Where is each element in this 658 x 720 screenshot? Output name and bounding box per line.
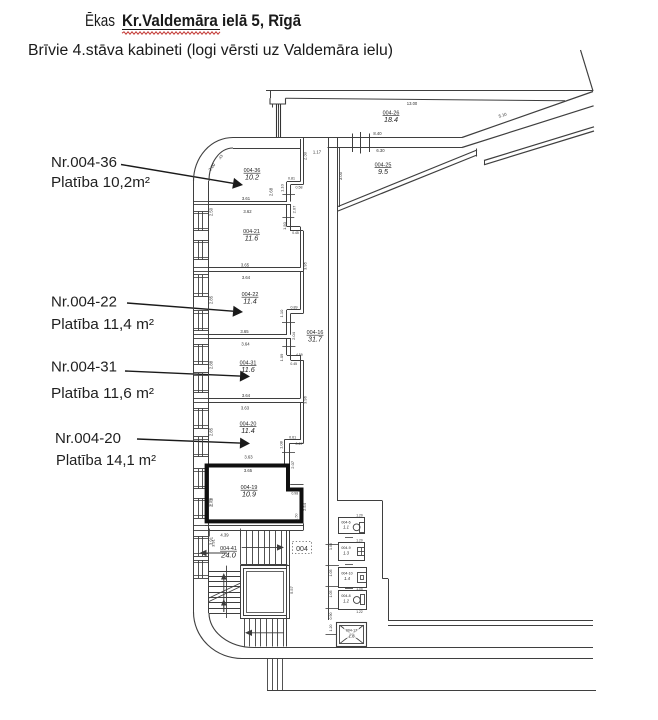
svg-text:1.2: 1.2 [343,599,349,604]
svg-text:18.4: 18.4 [384,115,398,124]
svg-text:1.50: 1.50 [282,221,287,230]
svg-text:Platība 11,6 m²: Platība 11,6 m² [51,386,154,402]
svg-text:1.3: 1.3 [343,551,349,556]
svg-text:1.10: 1.10 [280,183,285,192]
svg-text:2.04: 2.04 [291,331,296,340]
svg-text:9.5: 9.5 [378,167,389,176]
svg-text:Ēkas: Ēkas [85,11,115,30]
svg-text:11.4: 11.4 [241,426,254,435]
svg-text:3.00: 3.00 [338,171,343,180]
svg-text:1.00: 1.00 [329,543,333,550]
svg-text:13.00: 13.00 [407,101,418,106]
svg-text:004-17: 004-17 [346,629,357,633]
svg-text:4.39: 4.39 [220,532,229,537]
svg-text:11.6: 11.6 [245,234,258,243]
svg-text:10.2: 10.2 [245,173,259,182]
svg-text:Nr.004-20: Nr.004-20 [55,431,121,447]
svg-text:3.64: 3.64 [242,393,251,398]
svg-text:3.64: 3.64 [241,342,250,347]
svg-text:0.98: 0.98 [291,492,298,496]
svg-text:2.73: 2.73 [209,498,214,507]
svg-text:0.90: 0.90 [329,613,333,620]
svg-text:1.50: 1.50 [295,514,299,521]
svg-text:Kr.Valdemāra ielā 5, Rīgā: Kr.Valdemāra ielā 5, Rīgā [122,11,301,30]
svg-text:1.09: 1.09 [279,353,284,362]
svg-text:3.95: 3.95 [303,261,308,270]
svg-text:2.85: 2.85 [209,295,214,304]
svg-text:0.45: 0.45 [292,231,299,235]
svg-text:0.45: 0.45 [290,362,297,366]
svg-text:0.81: 0.81 [288,176,295,180]
svg-text:1.08: 1.08 [279,440,284,449]
svg-text:1.22: 1.22 [356,610,363,614]
svg-text:Platība 11,4 m²: Platība 11,4 m² [51,317,154,333]
svg-text:3.64: 3.64 [242,275,251,280]
svg-text:1.05: 1.05 [329,570,333,577]
svg-text:1.05: 1.05 [329,591,333,598]
svg-text:3.91: 3.91 [211,538,216,547]
svg-text:6.30: 6.30 [376,148,385,153]
svg-text:Nr.004-36: Nr.004-36 [51,155,117,171]
svg-text:004-9: 004-9 [341,546,350,550]
svg-text:5.57: 5.57 [289,585,294,594]
svg-text:2.88: 2.88 [209,360,214,369]
svg-text:Platība 10,2m²: Platība 10,2m² [51,175,150,191]
svg-text:1.17: 1.17 [313,150,322,155]
svg-text:1.10: 1.10 [279,309,284,318]
svg-text:3.61: 3.61 [242,196,251,201]
svg-text:1.20: 1.20 [356,538,363,542]
svg-text:1.20: 1.20 [329,625,333,632]
svg-text:Nr.004-31: Nr.004-31 [51,360,117,376]
svg-text:11.4: 11.4 [243,297,256,306]
svg-text:0.67: 0.67 [296,442,303,446]
svg-text:1.20: 1.20 [356,514,363,518]
svg-text:2.07: 2.07 [290,460,295,469]
svg-text:24.0: 24.0 [220,551,237,560]
svg-text:3.65: 3.65 [240,329,249,334]
svg-text:8.40: 8.40 [373,131,382,136]
svg-text:4.59: 4.59 [296,353,303,357]
svg-text:1.4: 1.4 [344,576,350,581]
svg-text:1.8: 1.8 [349,634,355,639]
svg-text:3.62: 3.62 [243,209,252,214]
svg-text:2.50: 2.50 [209,207,214,216]
svg-text:Nr.004-22: Nr.004-22 [51,295,117,311]
svg-text:11.6: 11.6 [241,365,254,374]
svg-text:3.65: 3.65 [241,262,250,267]
svg-text:3.63: 3.63 [244,455,253,460]
svg-text:1.1: 1.1 [343,525,349,530]
svg-text:2.68: 2.68 [268,187,273,196]
svg-text:Brīvie 4.stāva kabineti (logi: Brīvie 4.stāva kabineti (logi vērsti uz … [28,42,393,59]
svg-text:2.54: 2.54 [302,502,307,511]
svg-text:004-10: 004-10 [341,572,352,576]
svg-text:004-8: 004-8 [341,594,350,598]
svg-text:3.63: 3.63 [241,406,250,411]
svg-text:3.65: 3.65 [244,468,253,473]
svg-text:Platība 14,1 m²: Platība 14,1 m² [56,453,156,469]
svg-text:004: 004 [296,546,308,553]
svg-text:0.89: 0.89 [291,305,298,309]
svg-text:31.7: 31.7 [308,335,323,344]
svg-text:0.61: 0.61 [289,436,296,440]
svg-text:0.58: 0.58 [296,185,303,189]
svg-text:2.07: 2.07 [291,205,296,214]
svg-text:2.85: 2.85 [209,427,214,436]
svg-text:10.9: 10.9 [242,490,256,499]
